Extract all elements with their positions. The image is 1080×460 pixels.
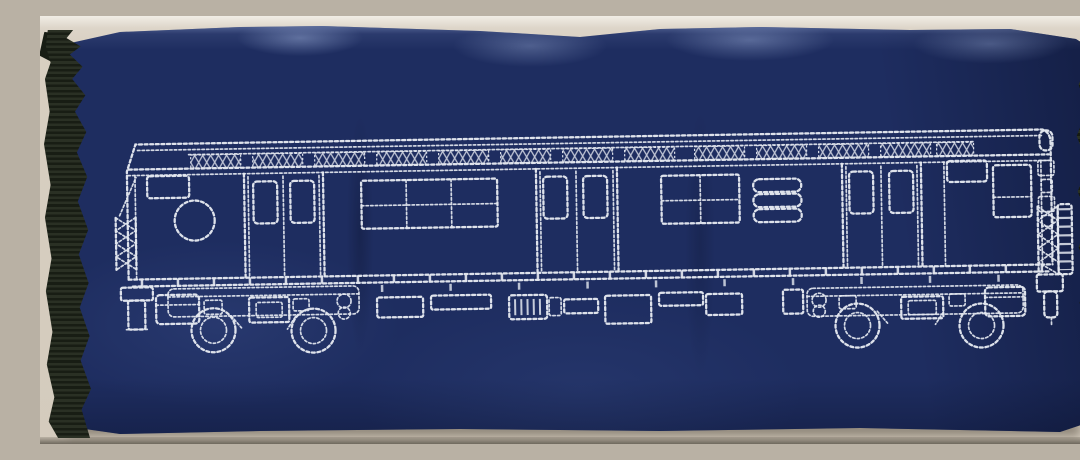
door-leaf-edges bbox=[846, 166, 919, 267]
cab-sign bbox=[947, 160, 987, 182]
sill-upper-line bbox=[129, 264, 1053, 279]
door-window bbox=[543, 176, 568, 218]
door-leaf-edges bbox=[248, 175, 321, 276]
door-window bbox=[889, 171, 914, 213]
gate-slat-rungs bbox=[1065, 208, 1066, 270]
door-window bbox=[290, 181, 315, 223]
vent-segment bbox=[563, 148, 613, 162]
spring-coil bbox=[337, 294, 351, 308]
louver-slat bbox=[753, 193, 801, 207]
vent-segment bbox=[625, 147, 675, 161]
truck-frame bbox=[168, 286, 359, 317]
equipment-box bbox=[431, 295, 491, 310]
equipment-box bbox=[564, 299, 598, 314]
window-dividers bbox=[361, 179, 498, 229]
door-pair-1 bbox=[244, 172, 325, 276]
door-window bbox=[583, 176, 608, 218]
cab-partition-seam bbox=[944, 162, 946, 265]
wheel bbox=[959, 303, 1004, 348]
door-pair-2 bbox=[536, 168, 619, 272]
vent-segment bbox=[377, 151, 427, 165]
vent-segment bbox=[695, 146, 745, 160]
step-box-line bbox=[985, 297, 1025, 298]
underbody-equipment bbox=[377, 278, 1022, 328]
brake-cylinder bbox=[249, 297, 289, 323]
equipment-box bbox=[377, 297, 423, 318]
vent-segment bbox=[315, 152, 365, 166]
wheel bbox=[835, 303, 880, 348]
cab-window-divider bbox=[993, 197, 1031, 198]
vent-segment bbox=[253, 153, 303, 167]
equipment-box bbox=[659, 292, 703, 306]
window-dividers bbox=[661, 175, 740, 224]
step-box-line bbox=[156, 304, 199, 305]
right-truck bbox=[807, 285, 1026, 351]
bumper-cap bbox=[121, 287, 153, 301]
wheel-hub bbox=[200, 317, 226, 343]
door-window bbox=[253, 181, 278, 223]
sill-rivet-ticks bbox=[141, 268, 1046, 283]
equipment-box bbox=[783, 289, 803, 313]
destination-sign-left bbox=[147, 176, 189, 199]
vent-segment bbox=[937, 142, 974, 156]
door-window bbox=[849, 171, 874, 213]
louver-slat bbox=[753, 178, 801, 192]
left-truck bbox=[156, 286, 360, 355]
door-pair-3 bbox=[842, 163, 923, 267]
gate-slat-bar bbox=[1058, 204, 1073, 274]
wheel-hub bbox=[968, 312, 994, 338]
brake-cylinder-inner bbox=[908, 300, 936, 314]
photo-embroidered-train-pouch bbox=[40, 16, 1080, 444]
wheel-hub bbox=[300, 317, 326, 343]
journal-box bbox=[949, 294, 965, 306]
window-group-1 bbox=[361, 179, 498, 229]
louver-slat bbox=[754, 208, 802, 222]
equipment-box bbox=[549, 297, 561, 315]
vent-segment bbox=[757, 145, 807, 159]
left-end-gate bbox=[115, 175, 154, 330]
cab-window bbox=[993, 165, 1032, 218]
equipment-box bbox=[605, 295, 651, 324]
step-box bbox=[156, 294, 199, 324]
vent-segment bbox=[819, 144, 869, 158]
door-leaf-edges bbox=[540, 171, 615, 272]
body-sill bbox=[129, 264, 1053, 286]
route-sign-circle bbox=[174, 200, 215, 241]
right-end-gate bbox=[1034, 130, 1073, 327]
coupler-shank bbox=[1044, 291, 1057, 317]
coupler-pocket bbox=[1037, 274, 1063, 291]
right-cab bbox=[944, 160, 1033, 265]
gate-frame bbox=[116, 218, 137, 270]
window-group-2 bbox=[661, 173, 802, 223]
equipment-box bbox=[706, 293, 742, 315]
subway-car-drawing bbox=[114, 129, 1073, 362]
vent-segment bbox=[439, 150, 489, 164]
gate-lattice bbox=[116, 218, 137, 270]
train-embroidery bbox=[40, 16, 1080, 444]
sill-lower-line bbox=[133, 271, 1049, 286]
vent-segment bbox=[881, 143, 931, 157]
vent-segment bbox=[191, 154, 241, 168]
bumper-post bbox=[128, 300, 145, 329]
vent-segment bbox=[501, 149, 551, 163]
